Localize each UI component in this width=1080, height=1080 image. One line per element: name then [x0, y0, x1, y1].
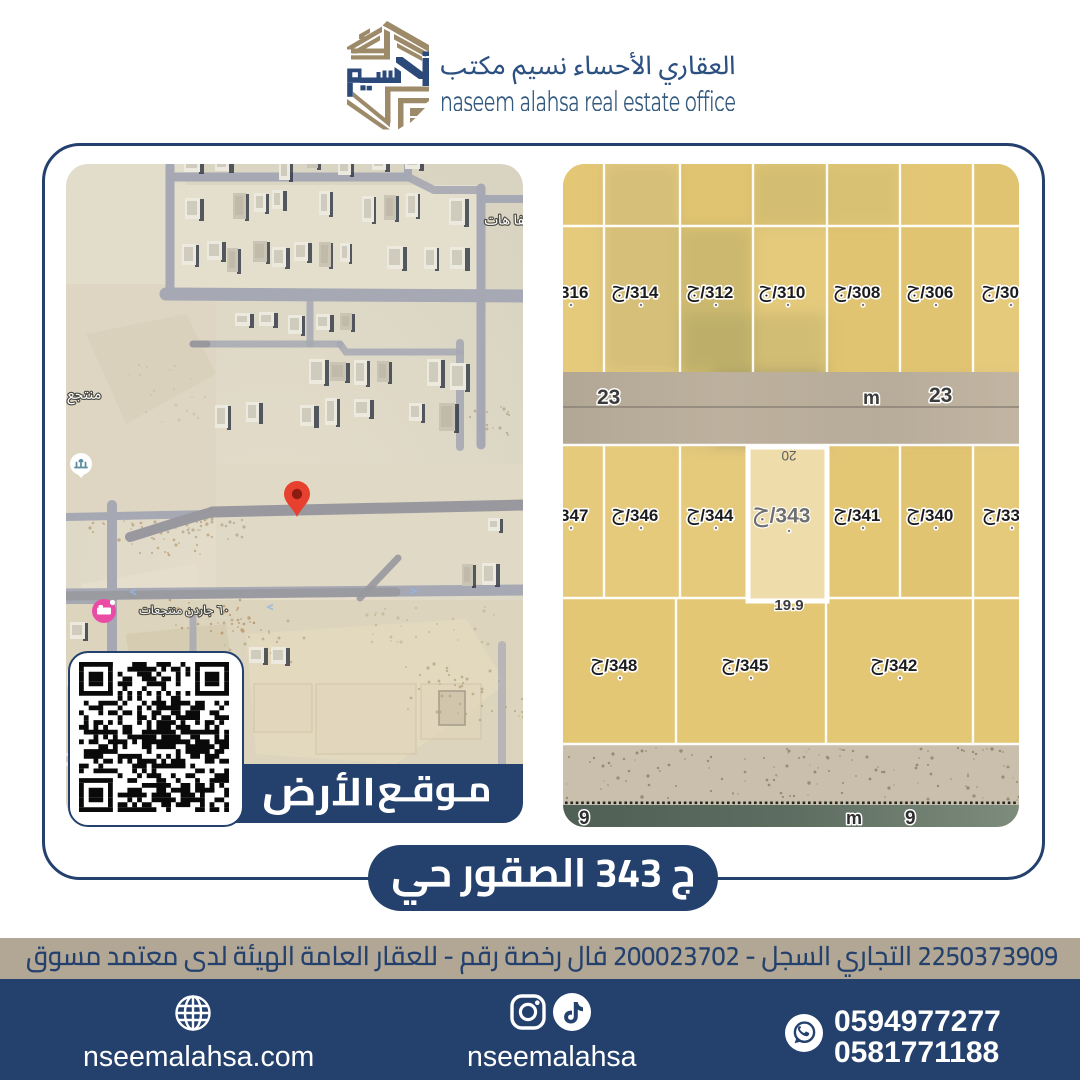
svg-text:/339: /339: [996, 506, 1019, 525]
svg-text:/314: /314: [625, 283, 659, 302]
svg-text:/342: /342: [884, 656, 917, 675]
svg-text:/345: /345: [735, 656, 768, 675]
svg-text:/308: /308: [847, 283, 880, 302]
svg-text:9: 9: [905, 808, 916, 827]
svg-text:/312: /312: [700, 283, 733, 302]
svg-text:/316: /316: [563, 283, 588, 302]
svg-text:/340: /340: [920, 506, 953, 525]
svg-text:m: m: [846, 808, 862, 827]
svg-text:19.9: 19.9: [774, 597, 803, 614]
svg-text:/310: /310: [772, 283, 805, 302]
svg-text:9: 9: [579, 808, 590, 827]
svg-text:/306: /306: [920, 283, 953, 302]
svg-text:23: 23: [929, 384, 952, 407]
svg-text:23: 23: [597, 386, 620, 409]
svg-text:/344: /344: [700, 506, 734, 525]
svg-text:20: 20: [781, 448, 796, 463]
svg-text:m: m: [863, 388, 880, 409]
svg-text:/341: /341: [847, 506, 880, 525]
svg-text:/304: /304: [995, 283, 1019, 302]
svg-text:/348: /348: [604, 656, 637, 675]
svg-text:/346: /346: [625, 506, 658, 525]
svg-text:/343: /343: [770, 505, 811, 528]
svg-text:/347: /347: [563, 506, 588, 525]
